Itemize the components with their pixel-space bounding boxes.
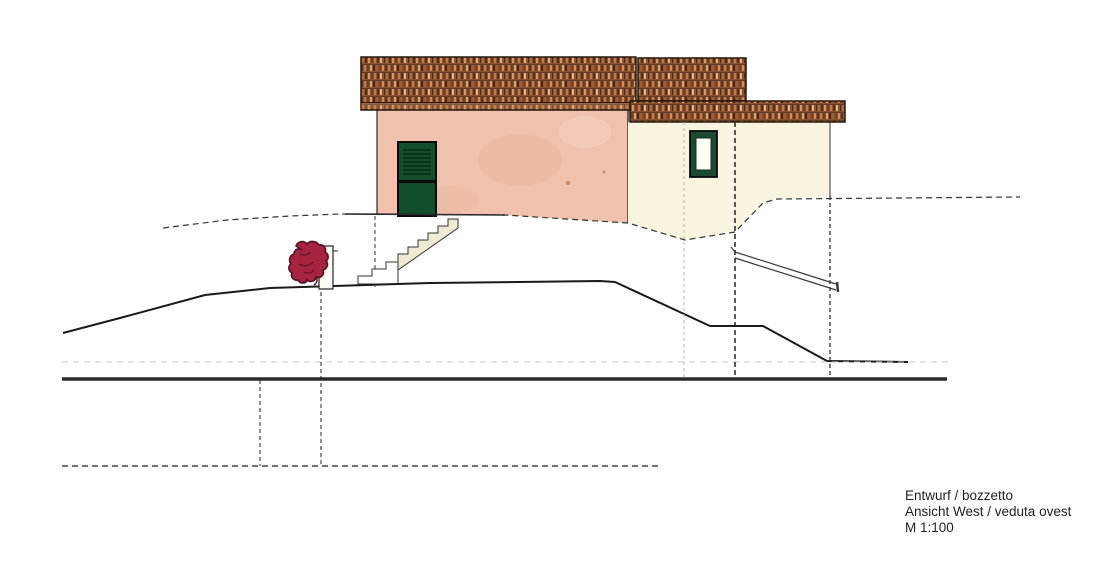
elevation-drawing-canvas: Entwurf / bozzetto Ansicht West / veduta… xyxy=(0,0,1116,578)
wall-speckle xyxy=(603,171,606,174)
wall-mottle xyxy=(478,134,562,186)
door-leaf xyxy=(398,142,436,216)
wall-speckle xyxy=(566,181,570,185)
window-pane xyxy=(696,138,711,170)
upper-annex-roof xyxy=(638,58,746,101)
annex-window xyxy=(690,131,717,177)
title-line-project: Entwurf / bozzetto xyxy=(905,488,1013,503)
wall-mottle xyxy=(559,116,611,148)
title-line-view: Ansicht West / veduta ovest xyxy=(905,504,1072,519)
title-line-scale: M 1:100 xyxy=(905,520,954,535)
entry-door xyxy=(398,142,436,216)
door-mid-rail xyxy=(399,180,435,183)
elevation-drawing: Entwurf / bozzetto Ansicht West / veduta… xyxy=(0,0,1116,578)
annex-roof-band xyxy=(630,101,845,122)
handrail-end-post xyxy=(837,282,838,292)
entry-terrace-line xyxy=(345,214,505,215)
main-roof-fascia xyxy=(361,103,636,109)
door-louvers xyxy=(403,150,431,174)
